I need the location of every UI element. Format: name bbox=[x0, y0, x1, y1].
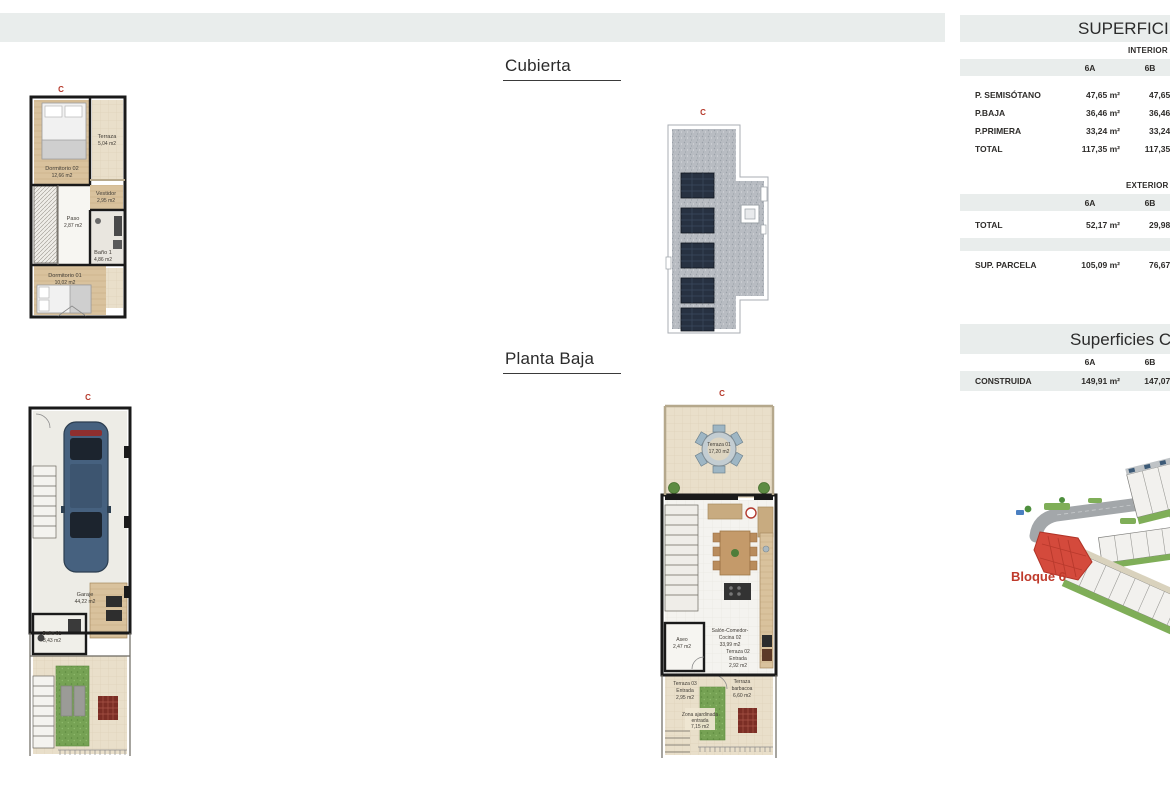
dining-table bbox=[713, 531, 757, 575]
value-6a: 117,35 m² bbox=[1055, 144, 1120, 154]
room-label: Baño 01 bbox=[43, 631, 62, 637]
table-row: TOTAL 117,35 m² 117,35 m² bbox=[960, 140, 1170, 158]
value-6b: 117,35 m² bbox=[1118, 144, 1170, 154]
table-row: SUP. PARCELA 105,09 m² 76,67 m² bbox=[960, 256, 1170, 274]
superficies-title: SUPERFICIES bbox=[1078, 19, 1170, 39]
table-row: P.BAJA 36,46 m² 36,46 m² bbox=[960, 104, 1170, 122]
room-label: Salón-Comedor- bbox=[712, 628, 749, 634]
room-label: Aseo bbox=[676, 637, 688, 643]
row-label: TOTAL bbox=[975, 144, 1003, 154]
room-area: 44,22 m2 bbox=[75, 599, 96, 605]
value-6a: 36,46 m² bbox=[1055, 108, 1120, 118]
site-plan: Bloque 6 bbox=[1000, 420, 1170, 660]
stairs bbox=[665, 505, 698, 611]
exterior-section-label: EXTERIOR bbox=[1126, 181, 1169, 190]
col-6a: 6A bbox=[1060, 198, 1120, 208]
interior-section-label: INTERIOR bbox=[1128, 46, 1168, 55]
room-area: 6,60 m2 bbox=[733, 693, 751, 699]
room-terraza-floor bbox=[92, 100, 123, 180]
col-6b: 6B bbox=[1120, 63, 1170, 73]
barbecue bbox=[98, 696, 118, 720]
col-6b: 6B bbox=[1120, 198, 1170, 208]
room-label: Baño 1 bbox=[94, 250, 112, 256]
room-label: Dormitorio 01 bbox=[48, 273, 82, 279]
row-label: SUP. PARCELA bbox=[975, 260, 1037, 270]
room-label: Terraza bbox=[734, 679, 751, 685]
room-area: 7,15 m2 bbox=[691, 724, 709, 730]
spacer-band bbox=[960, 238, 1170, 251]
col-6a: 6A bbox=[1060, 63, 1120, 73]
construida-row: CONSTRUIDA 149,91 m² 147,07 m² bbox=[960, 371, 1170, 391]
value-6b: 36,46 m² bbox=[1118, 108, 1170, 118]
title-cubierta: Cubierta bbox=[503, 56, 621, 81]
value-6a: 52,17 m² bbox=[1055, 220, 1120, 230]
room-label: Garaje bbox=[77, 592, 94, 598]
car-top-view bbox=[61, 422, 111, 572]
room-area: 12,66 m2 bbox=[52, 173, 73, 179]
superficies-title-band: SUPERFICIES bbox=[960, 15, 1170, 42]
room-label-2: Entrada bbox=[676, 688, 694, 694]
row-label: P.PRIMERA bbox=[975, 126, 1021, 136]
table-row: TOTAL 52,17 m² 29,98 m² bbox=[960, 216, 1170, 234]
construidas-title-band: Superficies Construidas bbox=[960, 324, 1170, 354]
room-label-2: barbacoa bbox=[732, 686, 753, 692]
room-terraza2-floor bbox=[106, 268, 123, 308]
bloque6-label: Bloque 6 bbox=[1011, 569, 1066, 584]
value-6a: 149,91 m² bbox=[1055, 376, 1120, 386]
interior-column-header: 6A 6B bbox=[960, 59, 1170, 76]
room-label: Vestidor bbox=[96, 191, 116, 197]
value-6b: 29,98 m² bbox=[1118, 220, 1170, 230]
garden bbox=[56, 666, 89, 746]
room-area: 2,87 m2 bbox=[64, 223, 82, 229]
room-area: 2,95 m2 bbox=[97, 198, 115, 204]
room-area: 10,02 m2 bbox=[55, 280, 76, 286]
plan-planta-primera: C Dormitorio 02 12,66 bbox=[28, 80, 128, 324]
room-label: Dormitorio 02 bbox=[45, 166, 79, 172]
value-6a: 105,09 m² bbox=[1055, 260, 1120, 270]
value-6b: 47,65 m² bbox=[1118, 90, 1170, 100]
room-area: 33,99 m2 bbox=[720, 642, 741, 648]
stairs-upper bbox=[33, 466, 56, 538]
plan-planta-baja: C Terraza 01 17,20 m2 bbox=[658, 383, 782, 765]
room-label: Terraza 01 bbox=[707, 442, 731, 448]
room-area: 17,20 m2 bbox=[709, 449, 730, 455]
section-marker-c: C bbox=[719, 389, 725, 398]
room-area: 3,43 m2 bbox=[43, 638, 61, 644]
surface-tables: SUPERFICIES INTERIOR 6A 6B P. SEMISÓTANO… bbox=[960, 0, 1170, 400]
title-planta-baja: Planta Baja bbox=[503, 349, 621, 374]
building-row-upper bbox=[1125, 452, 1170, 524]
row-label: CONSTRUIDA bbox=[975, 376, 1032, 386]
value-6a: 47,65 m² bbox=[1055, 90, 1120, 100]
table-row: P.PRIMERA 33,24 m² 33,24 m² bbox=[960, 122, 1170, 140]
stairs-lower bbox=[33, 676, 54, 748]
construidas-column-header: 6A 6B bbox=[960, 357, 1170, 371]
row-label: P. SEMISÓTANO bbox=[975, 90, 1041, 100]
value-6b: 76,67 m² bbox=[1118, 260, 1170, 270]
room-label: Terraza bbox=[98, 134, 118, 140]
room-area: 5,04 m2 bbox=[98, 141, 116, 147]
row-label: P.BAJA bbox=[975, 108, 1005, 118]
room-label-2: Entrada bbox=[729, 656, 747, 662]
room-label-2: Cocina 02 bbox=[719, 635, 742, 641]
value-6a: 33,24 m² bbox=[1055, 126, 1120, 136]
stairs bbox=[34, 186, 57, 263]
room-area: 2,95 m2 bbox=[676, 695, 694, 701]
barbecue bbox=[738, 708, 757, 733]
table-row: P. SEMISÓTANO 47,65 m² 47,65 m² bbox=[960, 86, 1170, 104]
plan-cubierta: C bbox=[653, 105, 777, 335]
plan-semisotano: C bbox=[28, 388, 132, 760]
section-marker-c: C bbox=[700, 108, 706, 117]
value-6b: 33,24 m² bbox=[1118, 126, 1170, 136]
room-label: Terraza 02 bbox=[726, 649, 750, 655]
counter bbox=[90, 583, 127, 638]
exterior-column-header: 6A 6B bbox=[960, 194, 1170, 211]
top-bar bbox=[0, 13, 945, 42]
bed-double bbox=[42, 103, 86, 159]
col-6b: 6B bbox=[1120, 357, 1170, 367]
bed-single bbox=[37, 285, 91, 313]
room-area: 4,86 m2 bbox=[94, 257, 112, 263]
room-label: Paso bbox=[67, 216, 80, 222]
room-area: 2,92 m2 bbox=[729, 663, 747, 669]
row-label: TOTAL bbox=[975, 220, 1003, 230]
section-marker-c: C bbox=[58, 85, 64, 94]
room-area: 2,47 m2 bbox=[673, 644, 691, 650]
section-marker-c: C bbox=[85, 393, 91, 402]
col-6a: 6A bbox=[1060, 357, 1120, 367]
construidas-title: Superficies Construidas bbox=[1070, 330, 1170, 350]
value-6b: 147,07 m² bbox=[1118, 376, 1170, 386]
room-label: Terraza 03 bbox=[673, 681, 697, 687]
